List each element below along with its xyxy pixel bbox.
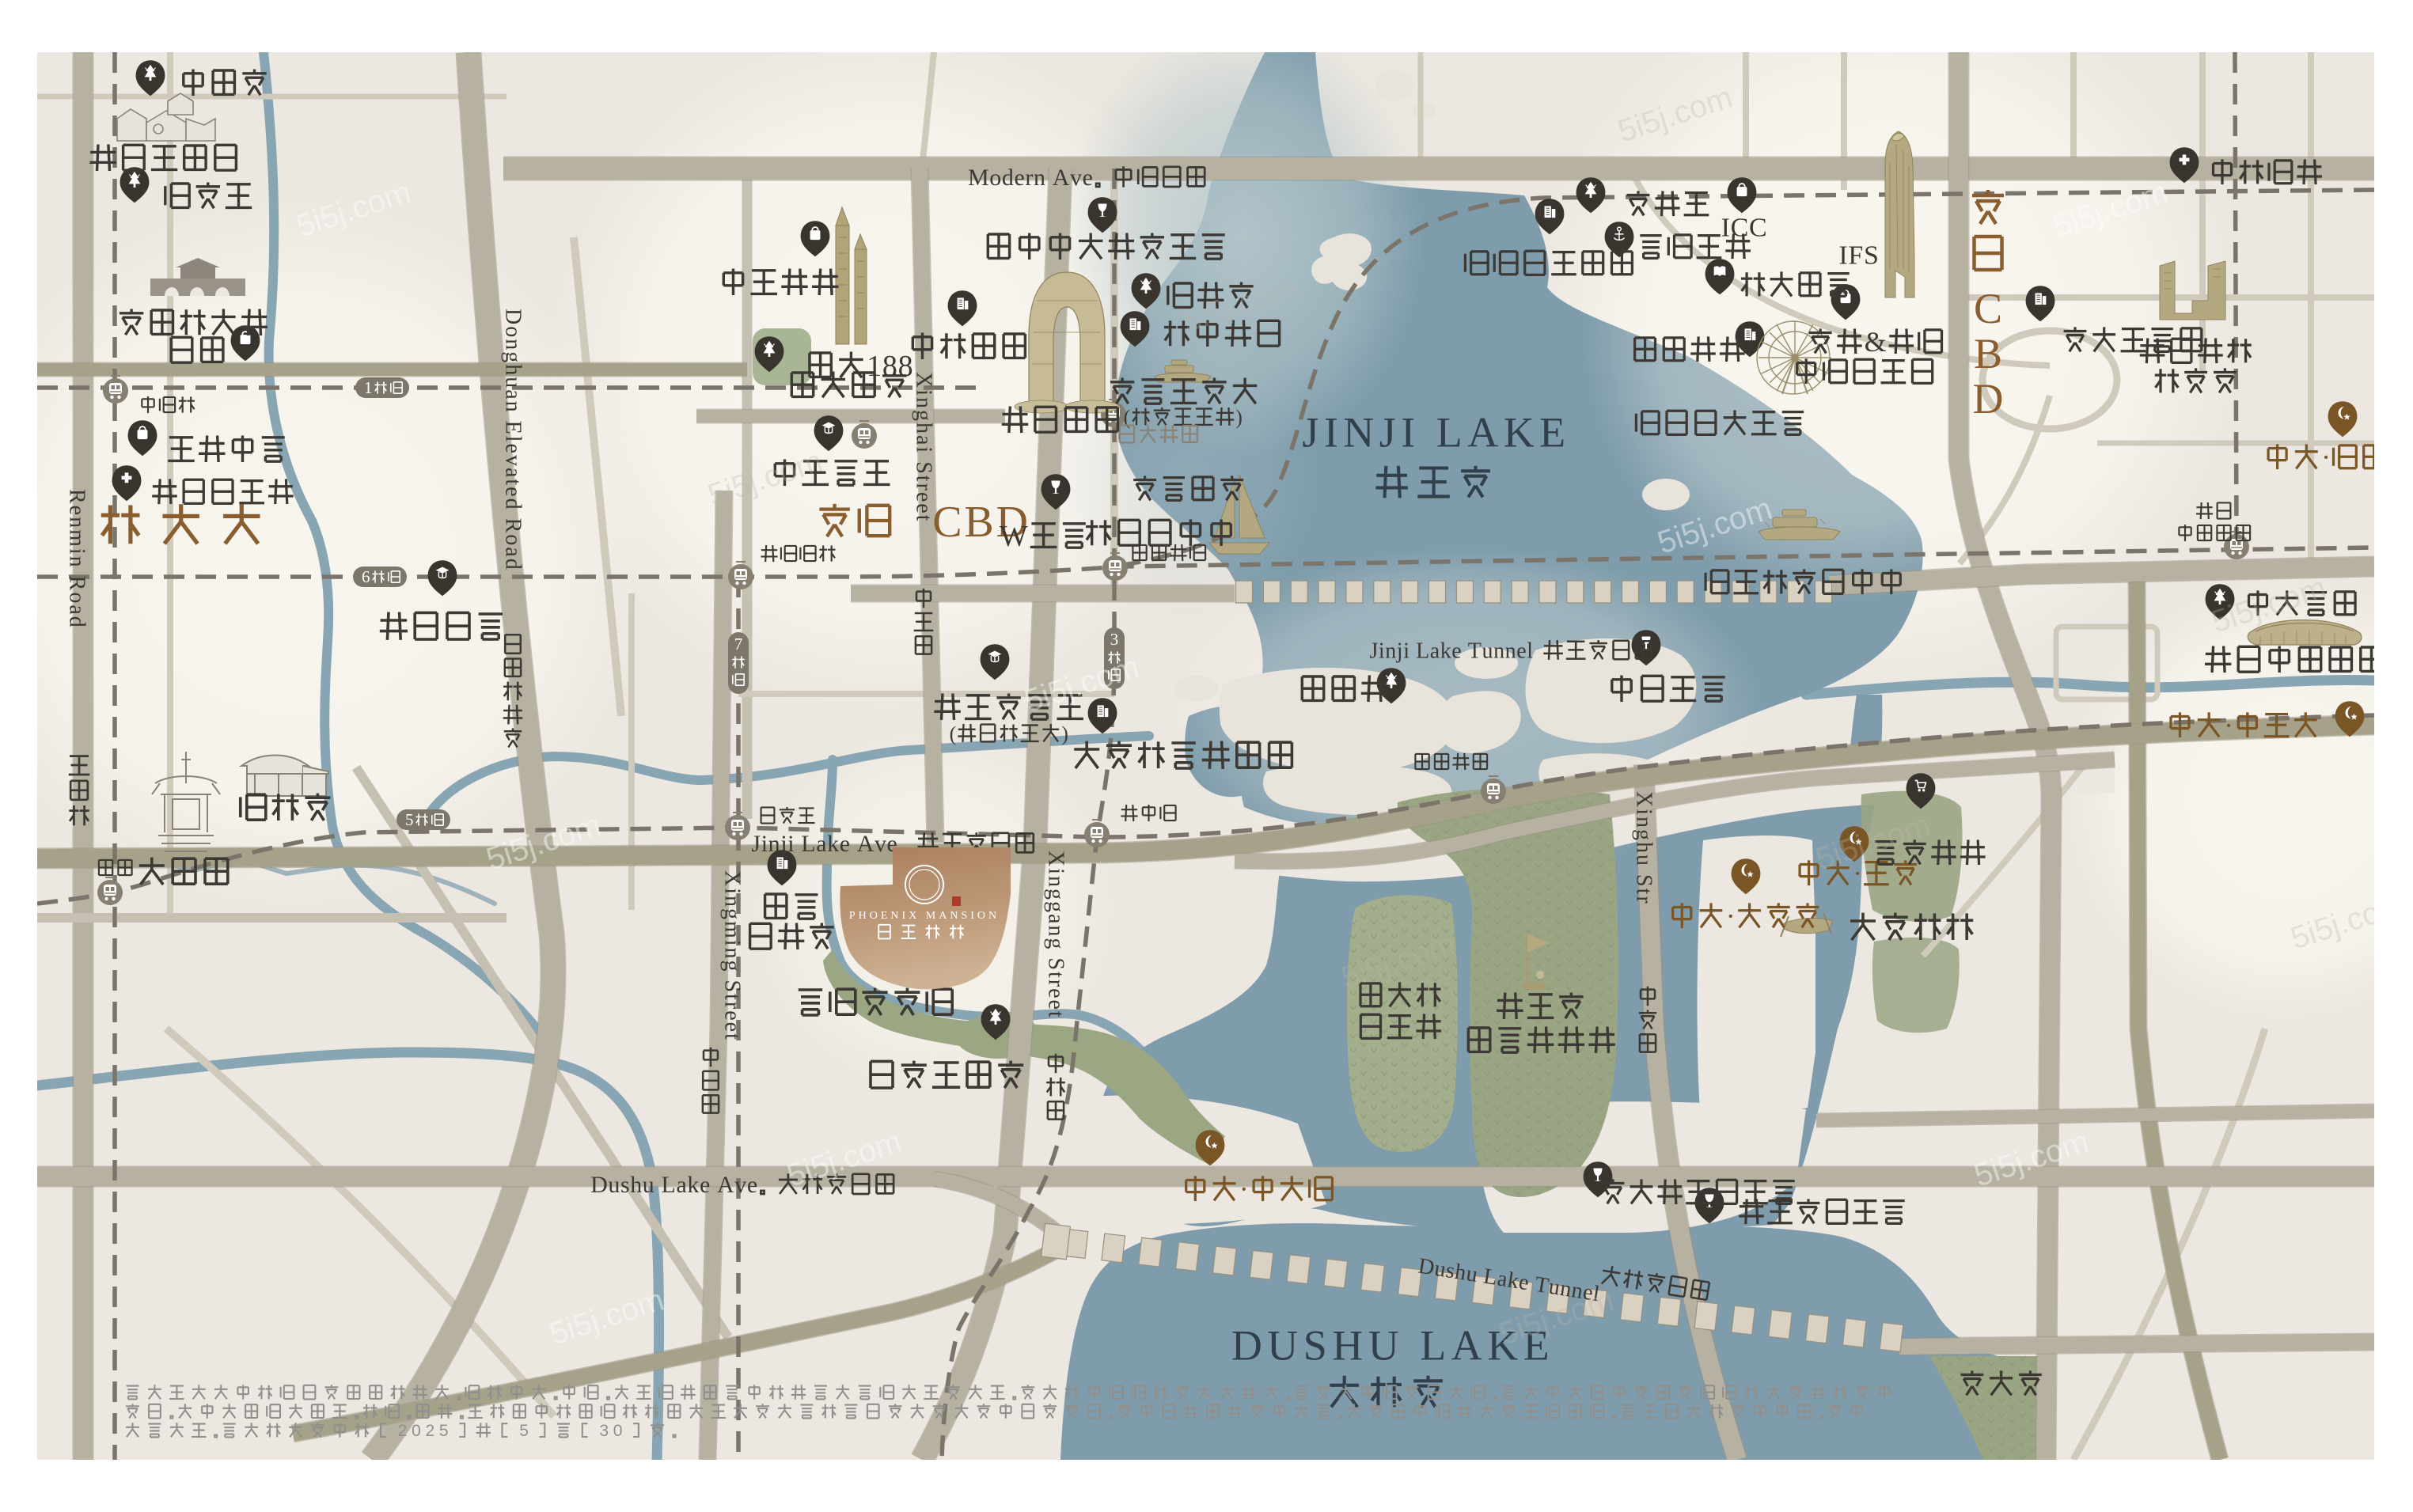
svg-text:i: i [1403, 639, 1409, 664]
svg-text:J: J [751, 831, 761, 857]
svg-text:n: n [1385, 639, 1396, 664]
svg-text:U: U [1267, 1321, 1298, 1369]
svg-text:Xingming Street: Xingming Street [720, 870, 745, 1041]
svg-text:v: v [734, 1172, 746, 1198]
svg-text:J: J [1302, 408, 1318, 456]
svg-text:a: a [816, 831, 826, 857]
svg-text:I: I [1721, 214, 1730, 243]
svg-text:n: n [1493, 639, 1504, 664]
svg-text:e: e [840, 831, 850, 857]
svg-text:D: D [1973, 375, 2004, 423]
svg-text:F: F [1848, 241, 1863, 271]
svg-text:I: I [1324, 408, 1338, 456]
svg-text:C: C [1974, 285, 2002, 332]
svg-text:8: 8 [882, 350, 897, 383]
svg-text:L: L [1436, 408, 1463, 456]
svg-text:k: k [687, 1172, 699, 1198]
svg-text:u: u [643, 1172, 654, 1198]
svg-text:l: l [1527, 639, 1533, 664]
svg-text:e: e [1015, 165, 1025, 191]
svg-text:A: A [857, 831, 875, 857]
svg-text:D: D [1231, 1321, 1262, 1369]
svg-text:C: C [1749, 214, 1767, 243]
svg-text:E: E [1539, 408, 1565, 456]
svg-text:e: e [1516, 639, 1526, 664]
svg-text:3: 3 [599, 1422, 609, 1440]
svg-text:B: B [1974, 330, 2002, 377]
svg-text:Xinggang Street: Xinggang Street [1044, 851, 1068, 1019]
svg-text:h: h [630, 1172, 642, 1198]
svg-text:PHOENIX MANSION: PHOENIX MANSION [849, 910, 1000, 922]
svg-text:5: 5 [439, 1422, 449, 1440]
svg-text:B: B [964, 498, 993, 547]
svg-text:n: n [1034, 165, 1045, 191]
svg-text:Xinghai Street: Xinghai Street [912, 372, 936, 523]
svg-text:Renmin Road: Renmin Road [65, 489, 89, 629]
svg-text:&: & [1865, 326, 1887, 358]
svg-text:j: j [1396, 639, 1403, 664]
svg-text:I: I [1838, 241, 1847, 271]
svg-text:J: J [1379, 408, 1396, 456]
svg-text:L: L [1416, 639, 1429, 664]
svg-text:K: K [1504, 408, 1535, 456]
svg-text:6: 6 [362, 567, 370, 586]
svg-text:N: N [1343, 408, 1374, 456]
svg-text:o: o [989, 165, 1001, 191]
svg-text:1: 1 [364, 378, 373, 397]
svg-text:j: j [780, 831, 787, 857]
svg-text:2: 2 [398, 1422, 408, 1440]
svg-text:0: 0 [412, 1422, 421, 1440]
svg-text:S: S [1864, 241, 1879, 271]
svg-text:A: A [717, 1172, 734, 1198]
svg-text:0: 0 [613, 1422, 623, 1440]
svg-text:W: W [1000, 520, 1028, 553]
svg-text:v: v [1070, 165, 1082, 191]
svg-text:C: C [932, 498, 962, 547]
svg-text:3: 3 [1110, 630, 1119, 649]
svg-text:d: d [1002, 165, 1014, 191]
svg-text:e: e [1083, 165, 1093, 191]
svg-text:A: A [1467, 408, 1498, 456]
svg-text:): ) [1061, 722, 1068, 745]
svg-text:I: I [1401, 408, 1415, 456]
svg-text:v: v [875, 831, 886, 857]
svg-text:n: n [1505, 639, 1516, 664]
svg-text:u: u [1482, 639, 1493, 664]
svg-text:i: i [761, 831, 768, 857]
svg-text:7: 7 [734, 635, 743, 654]
svg-text:H: H [1332, 1321, 1363, 1369]
svg-text:L: L [1420, 1321, 1446, 1369]
svg-text:i: i [1379, 639, 1385, 664]
svg-text:s: s [620, 1172, 630, 1198]
svg-text:U: U [1368, 1321, 1399, 1369]
svg-text:·: · [1726, 900, 1736, 932]
svg-text:a: a [677, 1172, 687, 1198]
svg-text:a: a [1430, 639, 1440, 664]
svg-text:u: u [608, 1172, 620, 1198]
svg-text:5: 5 [405, 810, 414, 829]
svg-text:J: J [1370, 639, 1379, 664]
svg-text:n: n [768, 831, 780, 857]
svg-text:A: A [1451, 1321, 1482, 1369]
svg-text:e: e [1451, 639, 1461, 664]
svg-text:D: D [590, 1172, 608, 1198]
svg-text:T: T [1468, 639, 1482, 664]
svg-text:M: M [968, 165, 989, 191]
svg-text:L: L [662, 1172, 676, 1198]
svg-text:Xinghu Str: Xinghu Str [1632, 791, 1656, 905]
svg-text:5: 5 [519, 1422, 529, 1440]
svg-text:L: L [801, 831, 815, 857]
svg-text:S: S [1303, 1321, 1327, 1369]
svg-text:·: · [2224, 710, 2233, 741]
svg-text:A: A [1053, 165, 1070, 191]
svg-text:2: 2 [426, 1422, 435, 1440]
svg-text:e: e [700, 1172, 710, 1198]
svg-text:): ) [1235, 406, 1243, 429]
svg-text:i: i [787, 831, 794, 857]
svg-text:Donghuan Elevated Road: Donghuan Elevated Road [501, 309, 525, 571]
svg-text:(: ( [950, 722, 957, 745]
svg-text:k: k [827, 831, 839, 857]
svg-text:r: r [1025, 165, 1033, 191]
svg-text:·: · [1239, 1173, 1249, 1205]
svg-text:k: k [1440, 639, 1451, 664]
svg-text:·: · [2321, 441, 2331, 473]
svg-text:e: e [747, 1172, 757, 1198]
